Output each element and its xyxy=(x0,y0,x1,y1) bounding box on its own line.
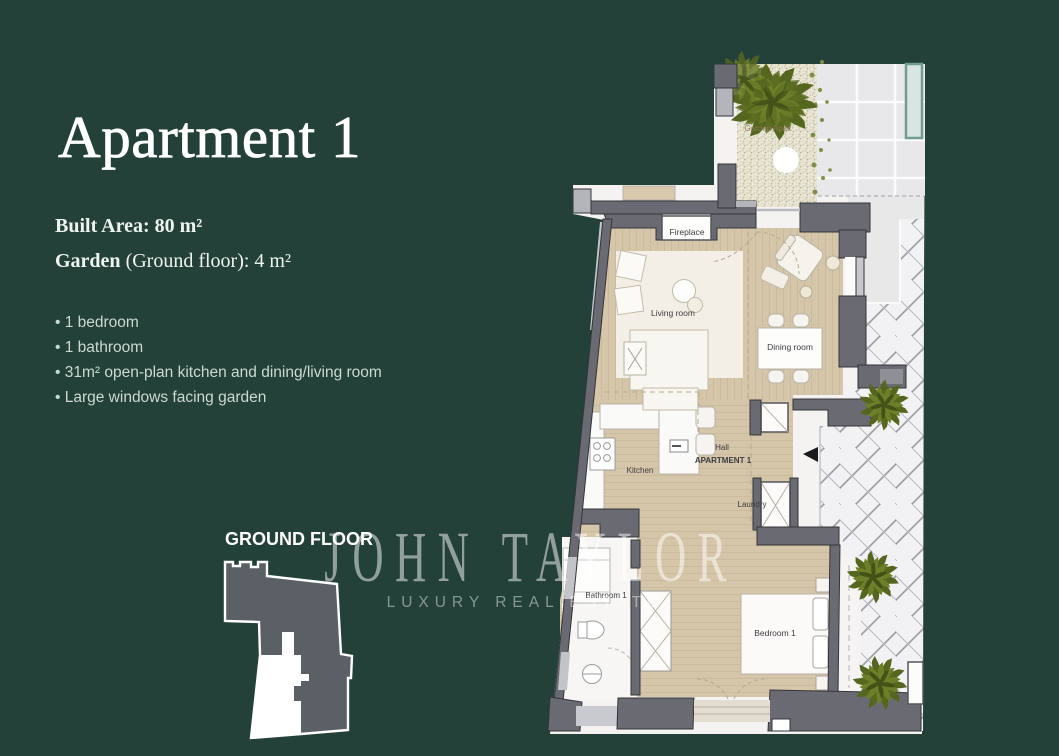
svg-text:Garden Apar.: Garden Apar. xyxy=(744,124,791,133)
svg-text:Hall: Hall xyxy=(715,443,729,452)
svg-text:Laundry: Laundry xyxy=(738,500,767,509)
svg-text:Bedroom 1: Bedroom 1 xyxy=(754,628,796,638)
svg-text:Fireplace: Fireplace xyxy=(670,227,705,237)
svg-text:Living room: Living room xyxy=(651,308,695,318)
svg-text:Dining room: Dining room xyxy=(767,342,813,352)
svg-text:APARTMENT 1: APARTMENT 1 xyxy=(695,456,752,465)
svg-text:Kitchen: Kitchen xyxy=(627,466,654,475)
